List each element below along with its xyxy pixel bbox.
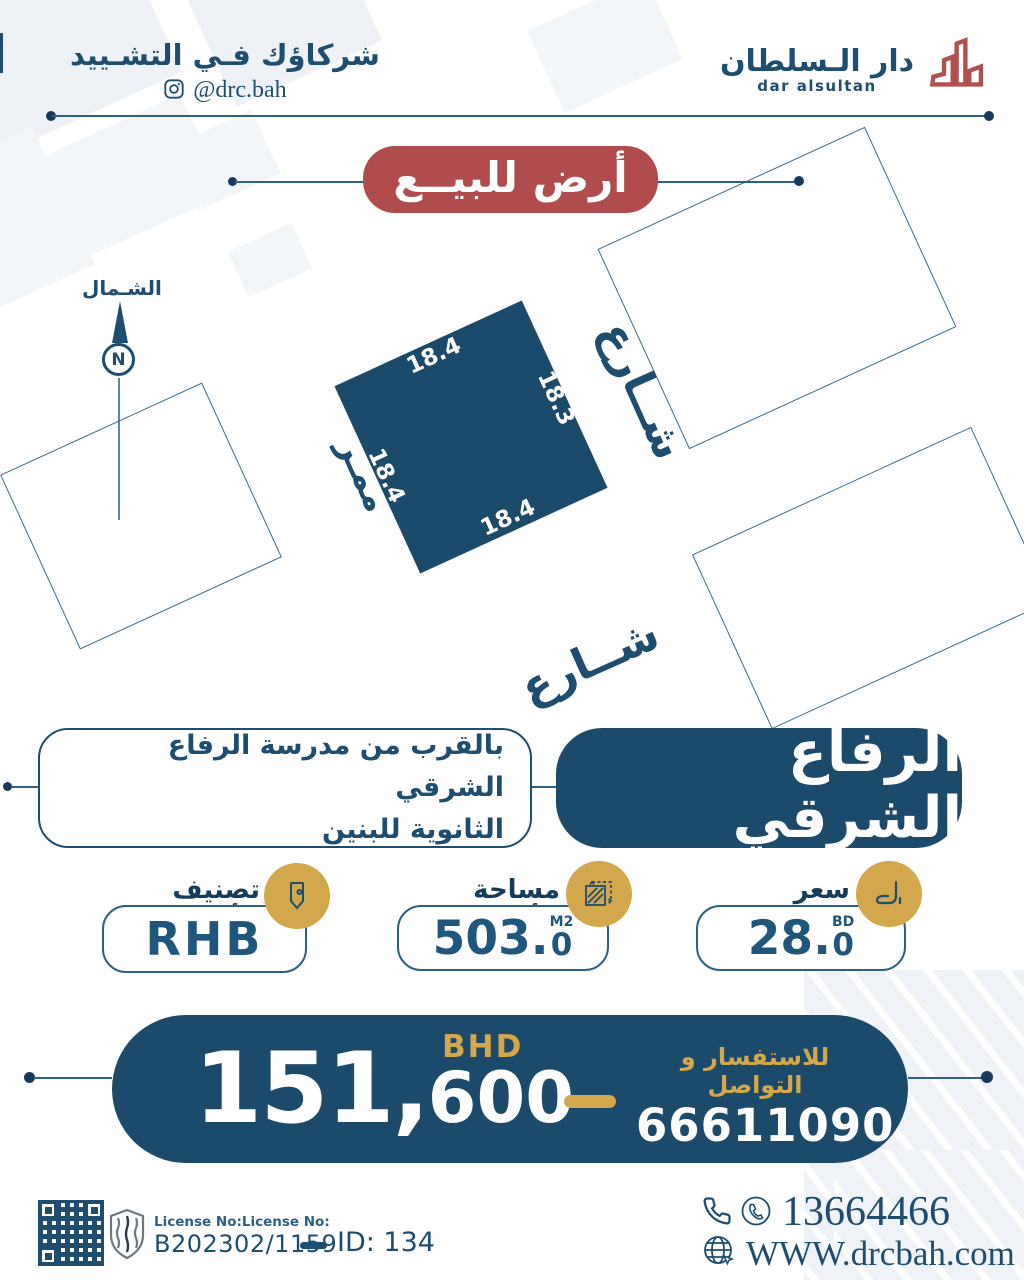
area-decimal: 0 xyxy=(551,930,573,961)
rera-shield-icon xyxy=(108,1208,146,1266)
banner-connector-line xyxy=(908,1077,984,1079)
edge-accent xyxy=(0,33,3,73)
price-per-foot-value: 28. xyxy=(748,915,831,962)
price-banner: 151,600 BHD للاستفسار و التواصل 66611090 xyxy=(112,1015,908,1163)
brand-name-english: dar alsultan xyxy=(720,77,914,95)
whatsapp-icon[interactable] xyxy=(738,1193,774,1233)
description-connector-line xyxy=(532,786,556,788)
neighbour-parcel xyxy=(0,383,282,650)
tag-icon xyxy=(264,863,330,929)
badge-connector-line xyxy=(235,181,364,183)
description-connector-line xyxy=(11,786,38,788)
description-line: الثانوية للبنين xyxy=(66,809,504,851)
flyer-canvas: شركاؤك فـي التشـييد @drc.bah دار الـسلطا… xyxy=(0,0,1024,1280)
location-name-pill: الرفاع الشرقي xyxy=(556,728,962,848)
instagram-handle[interactable]: @drc.bah xyxy=(193,77,286,104)
contact-label: للاستفسار و التواصل xyxy=(636,1043,874,1099)
header-tagline-block: شركاؤك فـي التشـييد @drc.bah xyxy=(70,38,380,104)
brand-name-arabic: دار الـسلطان xyxy=(720,44,914,79)
banner-connector-line xyxy=(34,1077,112,1079)
instagram-icon xyxy=(163,78,185,104)
price-per-foot-decimal: 0 xyxy=(832,930,854,961)
north-arrow-icon xyxy=(112,301,128,343)
logo-mark xyxy=(924,34,998,104)
plot-dimension-bottom: 18.4 xyxy=(409,463,607,572)
footer-website[interactable]: WWW.drcbah.com xyxy=(746,1234,1015,1274)
north-label: الشـمال xyxy=(82,276,162,300)
brand-block: دار الـسلطان dar alsultan xyxy=(720,34,998,104)
plot-dimension-top: 18.4 xyxy=(335,301,533,410)
price-amount-main: 151, xyxy=(194,1045,428,1133)
description-line: بالقرب من مدرسة الرفاع الشرقي xyxy=(66,725,504,809)
dash-separator xyxy=(300,1242,327,1249)
compass-icon: N xyxy=(102,343,135,376)
contact-number[interactable]: 66611090 xyxy=(636,1099,874,1153)
neighbour-parcel xyxy=(692,427,1024,729)
street-label-bottom: شــارع xyxy=(497,602,682,722)
globe-icon xyxy=(700,1232,738,1274)
area-icon xyxy=(566,861,632,927)
background-pattern xyxy=(527,0,683,113)
price-amount-rest: 600 xyxy=(428,1067,574,1130)
dash-separator xyxy=(564,1095,616,1108)
location-description-box: بالقرب من مدرسة الرفاع الشرقي الثانوية ل… xyxy=(38,728,532,848)
company-tagline: شركاؤك فـي التشـييد xyxy=(70,38,380,72)
classification-value: RHB xyxy=(146,916,264,962)
line-endpoint-dot xyxy=(984,111,994,121)
area-value: 503. xyxy=(433,915,549,962)
license-label: License No:License No: xyxy=(154,1214,330,1230)
line-endpoint-dot xyxy=(981,1071,993,1083)
line-endpoint-dot xyxy=(794,176,804,186)
background-pattern xyxy=(228,223,312,298)
phone-icon xyxy=(702,1196,732,1230)
badge-connector-line xyxy=(657,181,797,183)
for-sale-badge: أرض للبيــع xyxy=(363,146,658,213)
foot-icon xyxy=(856,861,922,927)
listing-id: ID: 134 xyxy=(337,1227,435,1258)
header-divider xyxy=(52,115,988,117)
currency-label: BHD xyxy=(442,1029,523,1065)
qr-code[interactable] xyxy=(38,1200,104,1266)
footer-phone[interactable]: 13664466 xyxy=(782,1188,950,1236)
plot-dimension-right: 18.3 xyxy=(532,367,579,429)
